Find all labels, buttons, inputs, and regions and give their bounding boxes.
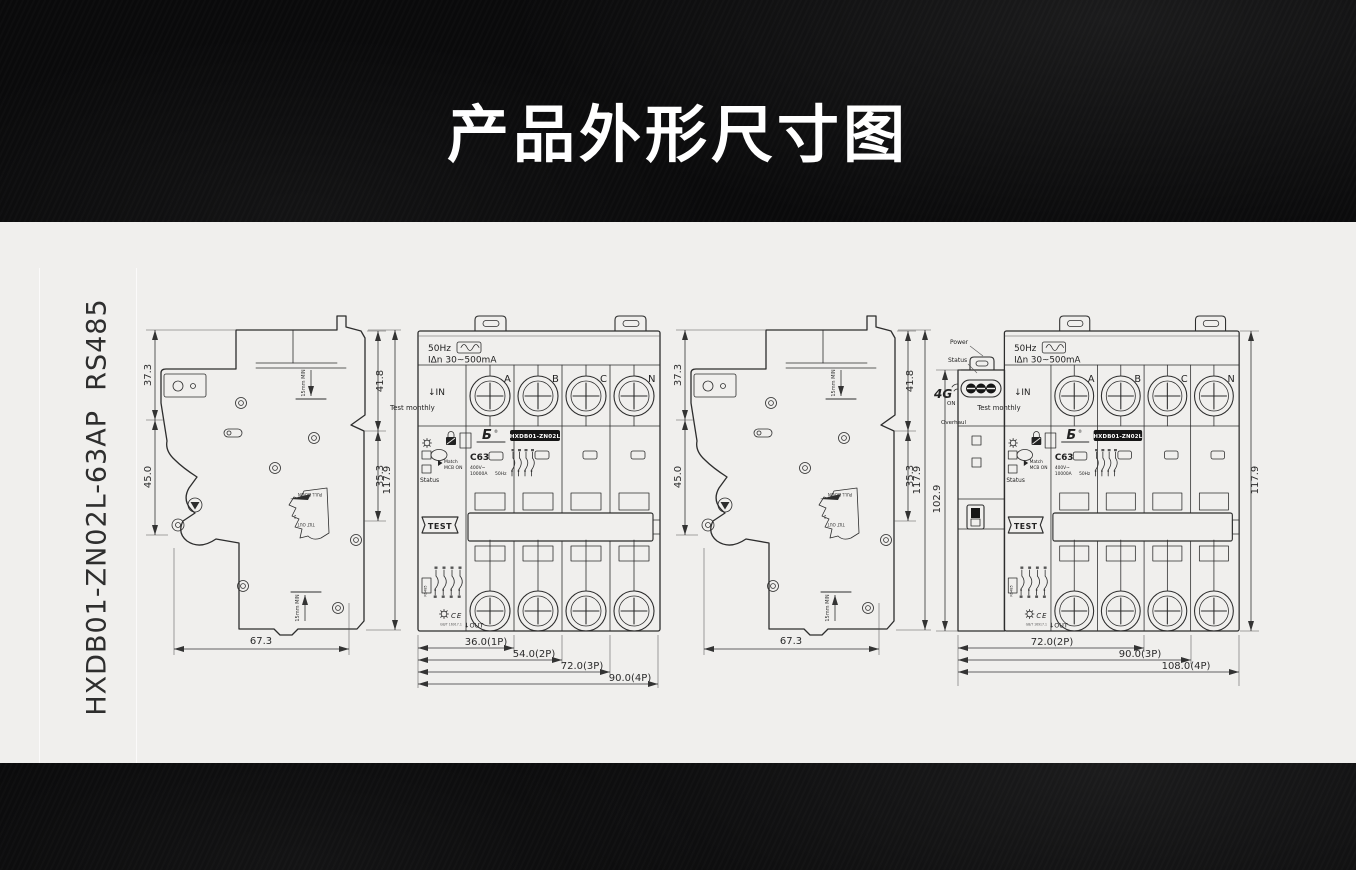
header-band: 产品外形尺寸图 — [0, 0, 1356, 222]
signal-arcs-icon — [952, 384, 958, 391]
front-terminal-block — [164, 374, 206, 397]
din-clip-detail: PULL DOWN TILT OUT 2 — [289, 488, 329, 539]
product-model-label: HXDB01-ZN02L-63AP RS485 — [82, 298, 113, 715]
voltage-label: 400V~ — [470, 465, 486, 471]
terminal-screw-icon — [173, 381, 183, 391]
dim-2p: 72.0(2P) — [1031, 637, 1074, 648]
rs485-schematic: RS485 — [422, 567, 462, 598]
clamp-screw — [172, 519, 184, 531]
rating-label: C63 — [470, 453, 489, 463]
test-monthly-label: Test monthly — [389, 404, 435, 412]
dim-3p: 72.0(3P) — [561, 661, 604, 672]
gear-icon — [439, 609, 448, 618]
seal-tab — [460, 433, 471, 448]
power-label: Power — [950, 339, 969, 346]
pull-down-label: PULL DOWN — [298, 492, 322, 497]
status-label: Status — [420, 477, 439, 484]
mcb-on-label: MCB ON — [444, 465, 462, 471]
terminal-hole — [191, 384, 196, 389]
pole-a-label: A — [504, 374, 511, 385]
panel-edge-line — [136, 268, 137, 763]
side-profile-outline — [161, 316, 365, 635]
front-view-1: 50Hz IΔn 30~500mA A B C N ↓IN Test month… — [383, 303, 673, 698]
breaking-capacity-label: 10000A — [470, 471, 488, 477]
toggle-handle-bar — [468, 513, 653, 541]
rivet-icon — [351, 535, 362, 546]
panel-edge-line — [39, 268, 40, 763]
power-switch — [967, 505, 984, 529]
rivet-icon — [309, 433, 320, 444]
test-button-label: TEST — [428, 522, 452, 531]
front-view-2: 4G Power Status ON Overhaul 102.9 — [928, 303, 1273, 698]
pole-n-label: N — [648, 374, 655, 385]
rated-freq-label: 50Hz — [495, 471, 507, 477]
dim-4p: 108.0(4P) — [1162, 661, 1211, 672]
frequency-label: 50Hz — [428, 344, 451, 354]
terminal-screw-icon — [518, 591, 558, 631]
status-window — [422, 465, 431, 473]
dim-front-height: 37.3 — [143, 364, 154, 386]
page-title: 产品外形尺寸图 — [0, 84, 1356, 174]
side-view-2 — [668, 303, 938, 668]
mounting-tab — [615, 316, 646, 331]
indicator-window — [972, 436, 981, 445]
front-view-1-dimensions: 36.0(1P) 54.0(2P) 72.0(3P) 90.0(4P) — [418, 635, 658, 688]
rivet-icon — [236, 398, 247, 409]
brand-logo-icon: Ƃ — [482, 428, 492, 443]
handle-slot — [619, 493, 649, 510]
in-label: ↓IN — [428, 388, 445, 398]
standard-label: GB/T 16917.1 — [440, 623, 462, 627]
rivet-icon — [270, 463, 281, 474]
dim-1p: 36.0(1P) — [465, 637, 508, 648]
side-view-dimensions: 37.3 45.0 41.8 35.3 117.9 67.3 — [143, 330, 401, 655]
terminal-screw-icon — [614, 591, 654, 631]
dim-module-height: 102.9 — [932, 485, 943, 514]
clearance-top-label: 15mm MIN — [301, 369, 307, 396]
side-view-1: 15mm MIN PULL DOWN TILT OUT 2 — [138, 303, 408, 668]
trip-schematic — [511, 449, 534, 476]
on-label: ON — [947, 401, 955, 407]
residual-current-label: IΔn 30~500mA — [428, 356, 497, 366]
lock-icon — [446, 432, 456, 446]
handle-slot — [475, 493, 505, 510]
handle-slot — [571, 493, 601, 510]
pole-c-label: C — [600, 374, 607, 385]
model-label: HXDB01-ZN02L — [510, 434, 561, 440]
side-view-copy — [673, 316, 931, 655]
test-knob — [431, 450, 447, 461]
rcd-module-face: Match MCB ON Status — [420, 432, 471, 485]
dim-total-depth: 67.3 — [250, 636, 272, 647]
pole-b-label: B — [552, 374, 559, 385]
terminal-screw-icon — [470, 591, 510, 631]
pointing-hand-icon — [438, 460, 443, 466]
mounting-tab — [475, 316, 506, 331]
pole-window — [535, 451, 549, 459]
iot-module: 4G Power Status ON Overhaul — [933, 339, 1005, 631]
pole-window — [583, 451, 597, 459]
handle-slot — [523, 493, 553, 510]
footer-band — [0, 763, 1356, 870]
input-terminals: A B C N — [470, 365, 655, 426]
breaker-copy — [976, 316, 1239, 631]
dim-total-height: 117.9 — [1250, 466, 1261, 495]
registered-mark: ® — [494, 429, 498, 434]
page: 产品外形尺寸图 HXDB01-ZN02L-63AP RS485 — [0, 0, 1356, 878]
tilt-step-label: 2 — [293, 514, 296, 519]
mounting-tab — [970, 357, 994, 370]
indicator-window — [972, 458, 981, 467]
rating-window — [489, 452, 503, 460]
terminal-screw-icon — [566, 591, 606, 631]
network-label: 4G — [933, 387, 952, 401]
rs485-label: RS485 — [424, 585, 428, 596]
gear-icon — [422, 438, 431, 447]
clearance-bottom-label: 15mm MIN — [295, 594, 301, 621]
dim-depth: 45.0 — [143, 466, 154, 488]
indicator-window — [422, 451, 431, 459]
ce-mark-label: CE — [451, 612, 462, 620]
pole-window — [631, 451, 645, 459]
rivet-icon — [333, 603, 344, 614]
status-label: Status — [948, 357, 967, 364]
match-label: Match — [444, 459, 458, 465]
dim-2p: 54.0(2P) — [513, 649, 556, 660]
dim-3p: 90.0(3P) — [1119, 649, 1162, 660]
dim-4p: 90.0(4P) — [609, 673, 652, 684]
tilt-out-label: TILT OUT — [297, 522, 316, 527]
